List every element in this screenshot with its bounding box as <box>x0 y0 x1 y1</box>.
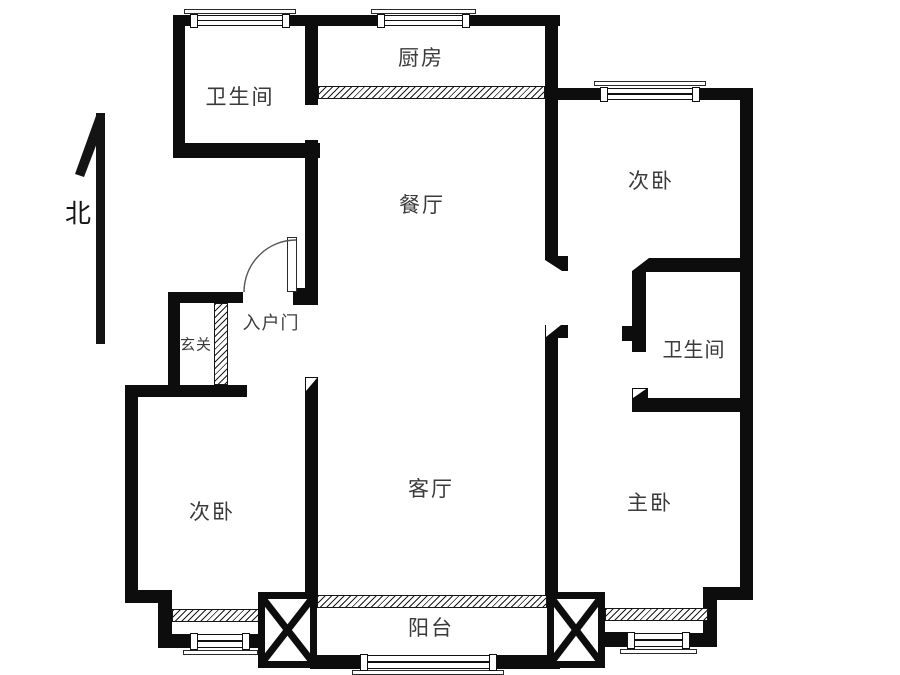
room-label-master-bedroom: 主卧 <box>627 487 673 517</box>
room-label-bathroom-north: 卫生间 <box>206 81 275 111</box>
label-entry-door: 入户门 <box>243 309 300 335</box>
door-jamb-notch <box>546 325 561 337</box>
plan-overlay <box>0 0 900 675</box>
room-label-dining: 餐厅 <box>399 189 445 219</box>
room-label-bathroom-east: 卫生间 <box>663 334 726 363</box>
door-jamb-notch <box>306 378 317 391</box>
room-label-balcony: 阳台 <box>408 612 454 642</box>
room-label-kitchen: 厨房 <box>398 42 444 72</box>
room-label-bedroom-sw: 次卧 <box>189 496 235 526</box>
north-label: 北 <box>65 194 91 231</box>
room-label-living: 客厅 <box>408 473 454 503</box>
structural-column <box>550 596 602 665</box>
door-jamb-notch <box>632 258 649 271</box>
floor-plan: 卫生间 厨房 餐厅 次卧 卫生间 入户门 玄关 次卧 客厅 主卧 阳台 北 <box>0 0 900 675</box>
room-label-bedroom-ne: 次卧 <box>628 165 674 195</box>
entry-door-arc <box>244 240 296 292</box>
structural-column <box>261 596 314 665</box>
room-label-foyer: 玄关 <box>180 334 212 355</box>
door-jamb-notch <box>633 389 646 398</box>
door-jamb-notch <box>545 260 562 271</box>
